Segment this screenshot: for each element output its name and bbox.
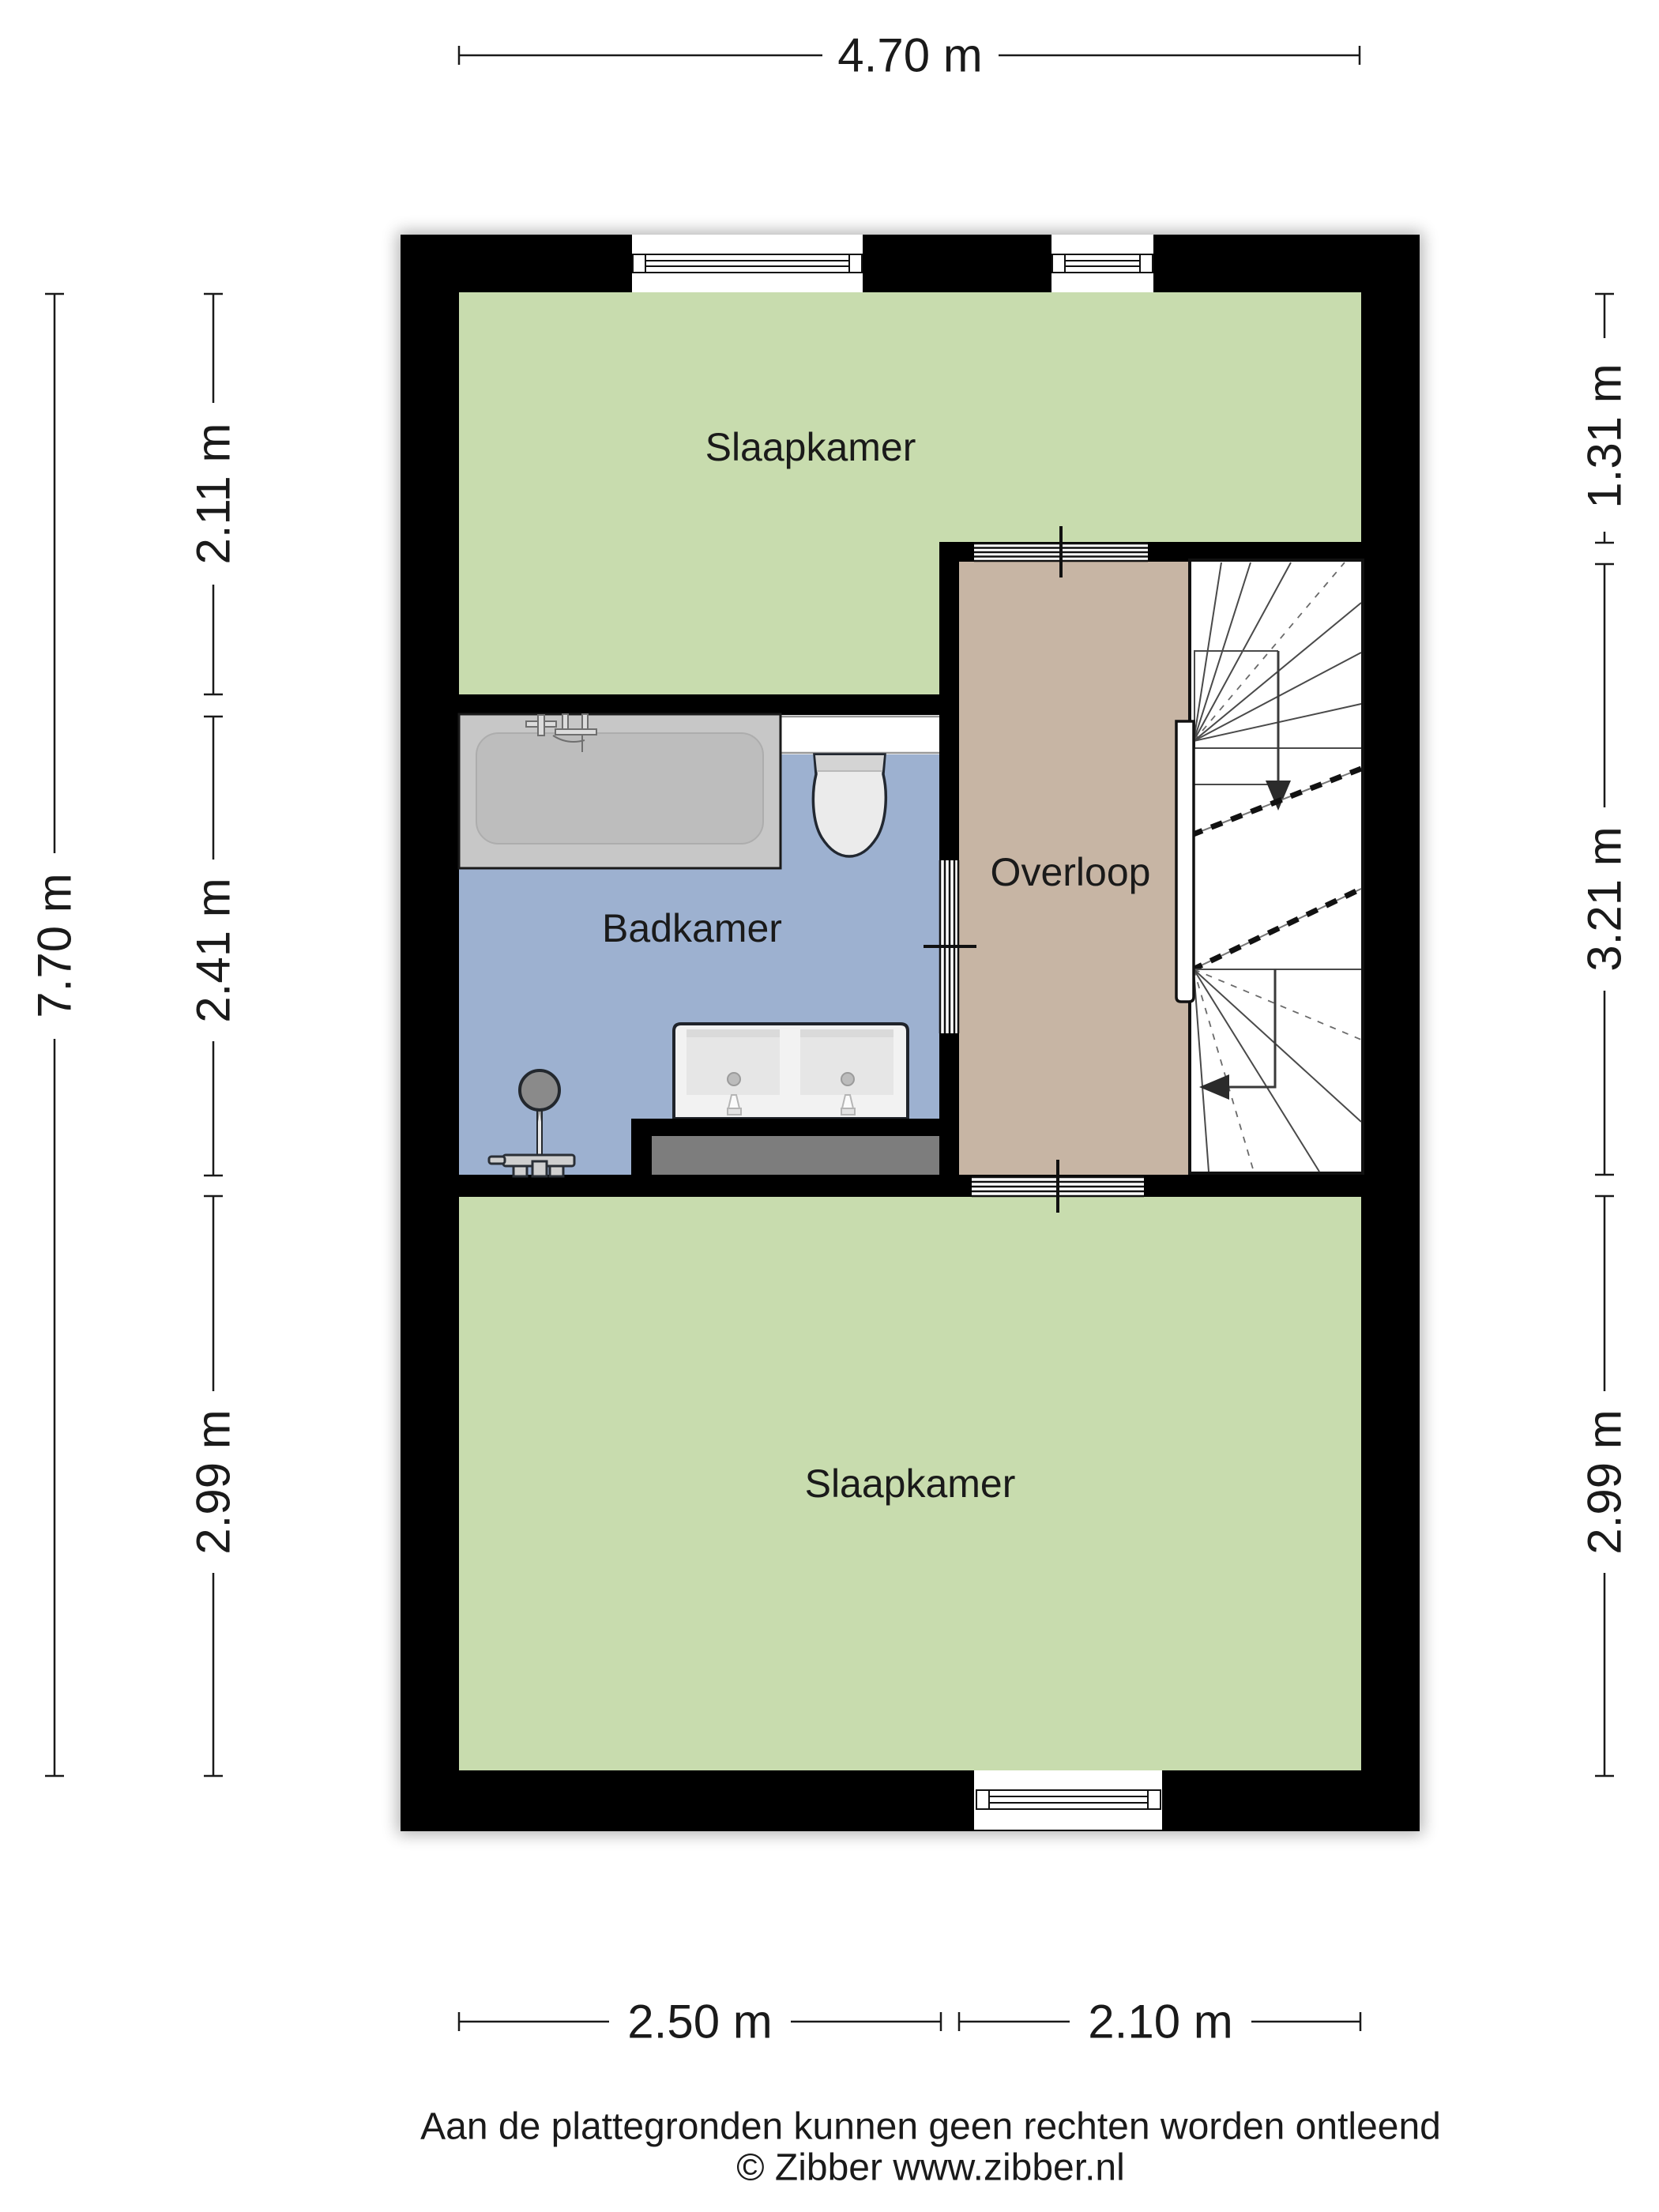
svg-text:2.41 m: 2.41 m	[187, 878, 240, 1022]
svg-text:4.70 m: 4.70 m	[837, 29, 982, 82]
svg-text:2.10 m: 2.10 m	[1088, 1996, 1232, 2048]
svg-text:Aan de plattegronden kunnen ge: Aan de plattegronden kunnen geen rechten…	[420, 2106, 1441, 2148]
svg-text:1.31 m: 1.31 m	[1578, 363, 1631, 508]
svg-text:© Zibber www.zibber.nl: © Zibber www.zibber.nl	[736, 2147, 1125, 2189]
svg-text:2.11 m: 2.11 m	[187, 423, 240, 565]
svg-text:2.99 m: 2.99 m	[187, 1409, 240, 1554]
svg-text:2.99 m: 2.99 m	[1578, 1409, 1631, 1554]
svg-text:Slaapkamer: Slaapkamer	[805, 1461, 1016, 1506]
svg-text:Slaapkamer: Slaapkamer	[705, 425, 916, 469]
svg-text:Badkamer: Badkamer	[602, 906, 782, 950]
svg-text:2.50 m: 2.50 m	[627, 1996, 772, 2048]
svg-text:7.70 m: 7.70 m	[28, 873, 81, 1018]
svg-text:Overloop: Overloop	[991, 850, 1151, 894]
svg-text:3.21 m: 3.21 m	[1578, 826, 1631, 971]
